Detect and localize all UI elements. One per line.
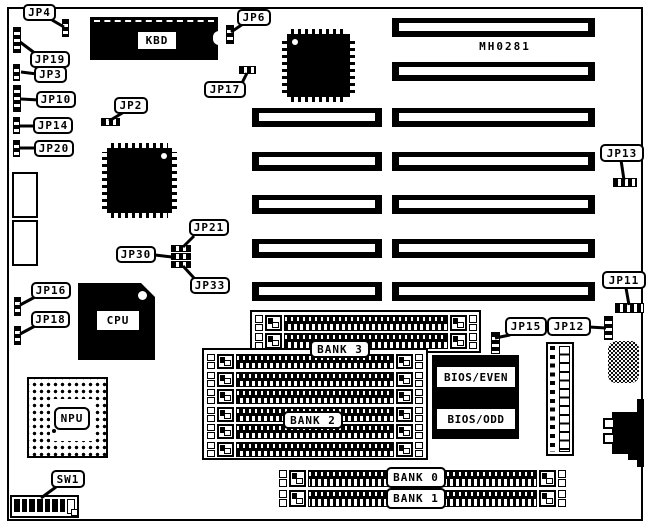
jp18-callout: JP18 <box>31 311 70 328</box>
qfp-chip-b <box>107 148 172 213</box>
chip-index-stripe <box>94 20 214 22</box>
socket-endcap <box>469 333 477 349</box>
keyboard-din-connector <box>612 412 642 454</box>
edge-pin-header <box>603 433 615 444</box>
jp12-callout: JP12 <box>547 317 591 336</box>
simm-socket <box>207 372 423 387</box>
isa-slot-segment <box>392 152 595 171</box>
jp10-callout: JP10 <box>36 91 76 108</box>
socket-endcap <box>255 315 263 331</box>
jp33-jumper <box>171 261 191 268</box>
isa-slot-segment <box>252 282 382 301</box>
bios-odd-chip: BIOS/ODD <box>432 397 519 439</box>
simm-latch-icon <box>450 315 467 331</box>
qfp-a-pins-top <box>291 29 346 34</box>
sw1-callout: SW1 <box>51 470 85 488</box>
jp12-jumper <box>604 316 613 340</box>
simm-latch-icon <box>539 490 556 507</box>
socket-endcap <box>558 470 566 487</box>
bank1-label: BANK 1 <box>386 488 446 509</box>
speaker-pad <box>608 341 639 383</box>
jp16-callout: JP16 <box>31 282 71 299</box>
jp16-jumper <box>14 297 21 316</box>
jp3-jumper <box>13 64 20 81</box>
qfp-b-pins-right <box>172 152 177 209</box>
jp17-callout: JP17 <box>204 81 246 98</box>
dip-position-on <box>60 499 66 512</box>
simm-latch-icon <box>539 470 556 487</box>
simm-latch-icon <box>217 354 234 369</box>
bank2-label: BANK 2 <box>283 411 343 429</box>
jp11-callout: JP11 <box>602 271 646 289</box>
jp14-callout: JP14 <box>33 117 73 134</box>
isa-slot-segment <box>392 108 595 127</box>
isa-slot-segment <box>252 152 382 171</box>
kbd-label: KBD <box>137 31 177 50</box>
dip-position-on <box>52 499 58 512</box>
simm-latch-icon <box>396 442 413 457</box>
jp11-jumper <box>615 303 644 313</box>
simm-latch-icon <box>217 407 234 422</box>
jp13-jumper <box>613 178 637 187</box>
socket-endcap <box>207 389 215 404</box>
simm-latch-icon <box>265 333 282 349</box>
isa-slot-segment <box>252 239 382 258</box>
simm-socket <box>207 442 423 457</box>
jp21-callout: JP21 <box>189 219 229 236</box>
simm-latch-icon <box>289 490 306 507</box>
simm-latch-icon <box>217 442 234 457</box>
isa-slot-segment <box>392 282 595 301</box>
npu-label: NPU <box>54 407 90 430</box>
jp30-callout: JP30 <box>116 246 156 263</box>
socket-endcap <box>255 333 263 349</box>
edge-pin-header <box>603 418 615 429</box>
qfp-a-pins-right <box>350 38 355 93</box>
simm-latch-icon <box>396 389 413 404</box>
bios-odd-label: BIOS/ODD <box>436 408 516 430</box>
jp21-jumper <box>171 245 191 252</box>
socket-endcap <box>415 407 423 422</box>
crystal-can <box>12 172 38 218</box>
socket-endcap <box>415 389 423 404</box>
socket-endcap <box>469 315 477 331</box>
simm-latch-icon <box>217 372 234 387</box>
qfp-b-pins-bottom <box>111 213 168 218</box>
sw1-dip-switch <box>10 495 79 518</box>
socket-endcap <box>279 470 287 487</box>
isa-slot-segment <box>392 195 595 214</box>
qfp-a-pins-left <box>282 38 287 93</box>
socket-endcap <box>558 490 566 507</box>
simm-latch-icon <box>396 354 413 369</box>
bank2-socket-group <box>202 348 428 460</box>
power-connector <box>546 342 574 456</box>
din-connector-step <box>628 454 644 460</box>
qfp-b-pins-left <box>102 152 107 209</box>
socket-endcap <box>415 442 423 457</box>
socket-endcap <box>207 424 215 439</box>
socket-endcap <box>415 372 423 387</box>
socket-endcap <box>279 490 287 507</box>
jp6-jumper <box>226 25 234 44</box>
pin1-dot <box>138 291 147 300</box>
dip-position-on <box>37 499 43 512</box>
jp20-jumper <box>13 140 20 157</box>
simm-latch-icon <box>396 407 413 422</box>
jp4-callout: JP4 <box>23 4 56 21</box>
isa-slot-segment <box>392 62 595 81</box>
simm-latch-icon <box>396 424 413 439</box>
bios-even-chip: BIOS/EVEN <box>432 355 519 397</box>
simm-contacts <box>236 389 394 404</box>
simm-latch-icon <box>217 389 234 404</box>
chip-notch <box>213 31 219 45</box>
jp6-callout: JP6 <box>237 9 271 26</box>
jp13-callout: JP13 <box>600 144 644 162</box>
jp4-jumper <box>62 19 69 37</box>
socket-endcap <box>415 424 423 439</box>
isa-slot-segment <box>252 108 382 127</box>
bank3-label: BANK 3 <box>310 340 370 358</box>
cpu-chip: CPU <box>78 283 155 360</box>
simm-latch-icon <box>265 315 282 331</box>
dip-position-on <box>29 499 35 512</box>
jp15-callout: JP15 <box>505 317 547 336</box>
bank0-label: BANK 0 <box>386 467 446 488</box>
pin1-dot <box>52 429 56 433</box>
jp14-jumper <box>13 117 20 134</box>
connector-pins-right <box>559 346 570 452</box>
jp17-jumper <box>239 66 256 74</box>
simm-latch-icon <box>289 470 306 487</box>
qfp-chip-a <box>287 34 350 97</box>
crystal-can <box>12 220 38 266</box>
socket-endcap <box>415 354 423 369</box>
qfp-b-pins-top <box>111 143 168 148</box>
dip-position-on <box>22 499 28 512</box>
simm-latch-icon <box>396 372 413 387</box>
dip-corner-key <box>71 509 78 516</box>
jp30-jumper <box>171 253 191 260</box>
socket-endcap <box>207 407 215 422</box>
simm-contacts <box>284 315 448 331</box>
dip-position-on <box>14 499 20 512</box>
isa-slot-segment <box>392 18 595 37</box>
dip-position-on <box>45 499 51 512</box>
pin1-dot <box>161 153 167 159</box>
simm-socket <box>255 315 477 331</box>
jp19-jumper <box>13 27 21 53</box>
keyboard-controller-chip: KBD <box>90 17 218 60</box>
connector-pins-left <box>550 346 555 452</box>
simm-contacts <box>236 442 394 457</box>
part-number: MH0281 <box>455 40 555 53</box>
jp15-jumper <box>491 332 500 354</box>
jp10-jumper <box>13 85 21 112</box>
jp2-jumper <box>101 118 120 126</box>
qfp-a-pins-bottom <box>291 97 346 102</box>
simm-latch-icon <box>450 333 467 349</box>
simm-contacts <box>236 372 394 387</box>
cpu-label: CPU <box>96 310 140 331</box>
jp3-callout: JP3 <box>34 66 67 83</box>
jp33-callout: JP33 <box>190 277 230 294</box>
socket-endcap <box>207 372 215 387</box>
pin1-dot <box>292 39 298 45</box>
socket-endcap <box>207 442 215 457</box>
socket-endcap <box>207 354 215 369</box>
motherboard-layout-diagram: MH0281 KBD CPU NPU <box>0 0 651 529</box>
jp18-jumper <box>14 326 21 345</box>
jp20-callout: JP20 <box>34 140 74 157</box>
jp2-callout: JP2 <box>114 97 148 114</box>
simm-socket <box>207 389 423 404</box>
isa-slot-segment <box>392 239 595 258</box>
isa-slot-segment <box>252 195 382 214</box>
npu-socket: NPU <box>27 377 108 458</box>
bios-even-label: BIOS/EVEN <box>436 366 516 388</box>
simm-latch-icon <box>217 424 234 439</box>
